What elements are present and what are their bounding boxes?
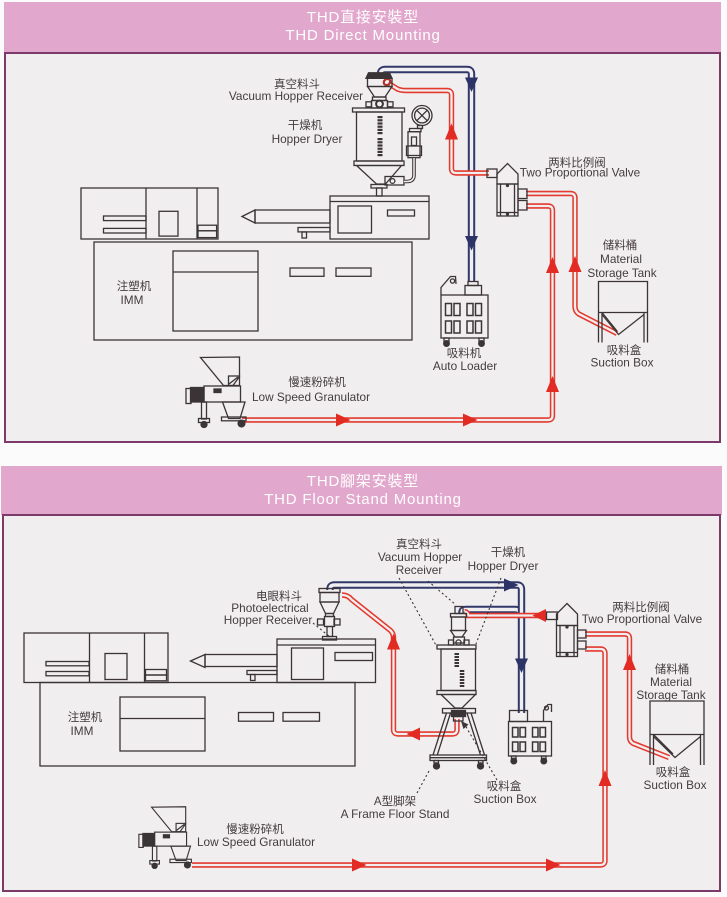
svg-text:THD腳架安裝型: THD腳架安裝型 (307, 473, 419, 490)
svg-text:Low Speed Granulator: Low Speed Granulator (197, 835, 315, 849)
svg-text:THD直接安裝型: THD直接安裝型 (307, 9, 419, 26)
svg-text:Auto Loader: Auto Loader (433, 359, 497, 373)
svg-text:吸料盒: 吸料盒 (487, 779, 522, 793)
svg-text:注塑机: 注塑机 (68, 710, 103, 724)
svg-text:干燥机: 干燥机 (288, 118, 323, 132)
svg-text:Receiver: Receiver (396, 563, 443, 577)
svg-text:Suction Box: Suction Box (474, 792, 537, 806)
svg-text:Storage Tank: Storage Tank (636, 688, 705, 702)
svg-text:Vacuum Hopper: Vacuum Hopper (378, 550, 462, 564)
svg-text:慢速粉碎机: 慢速粉碎机 (226, 822, 284, 836)
svg-text:储料桶: 储料桶 (655, 662, 690, 676)
svg-text:Suction Box: Suction Box (591, 356, 654, 370)
svg-text:THD Direct Mounting: THD Direct Mounting (285, 27, 440, 44)
svg-text:Two Proportional Valve: Two Proportional Valve (582, 612, 703, 626)
svg-text:吸料机: 吸料机 (447, 346, 482, 360)
svg-text:真空料斗: 真空料斗 (396, 537, 442, 551)
svg-text:THD Floor Stand Mounting: THD Floor Stand Mounting (264, 491, 462, 508)
svg-text:Suction Box: Suction Box (644, 778, 707, 792)
svg-text:Material: Material (600, 252, 642, 266)
svg-text:A Frame Floor Stand: A Frame Floor Stand (341, 807, 450, 821)
svg-text:IMM: IMM (71, 724, 94, 738)
svg-text:Low Speed Granulator: Low Speed Granulator (252, 390, 370, 404)
svg-text:Hopper Dryer: Hopper Dryer (272, 132, 343, 146)
svg-text:干燥机: 干燥机 (491, 545, 526, 559)
svg-text:吸料盒: 吸料盒 (656, 765, 691, 779)
svg-text:Material: Material (650, 675, 692, 689)
svg-text:IMM: IMM (121, 293, 144, 307)
svg-text:Storage Tank: Storage Tank (587, 266, 656, 280)
svg-text:慢速粉碎机: 慢速粉碎机 (288, 375, 346, 389)
svg-text:Two Proportional Valve: Two Proportional Valve (520, 166, 641, 180)
svg-text:注塑机: 注塑机 (117, 279, 152, 293)
svg-text:储料桶: 储料桶 (603, 238, 638, 252)
svg-text:A型脚架: A型脚架 (374, 794, 416, 808)
svg-text:Hopper Dryer: Hopper Dryer (468, 559, 539, 573)
svg-text:Hopper Receiver: Hopper Receiver (224, 613, 313, 627)
svg-text:Vacuum Hopper Receiver: Vacuum Hopper Receiver (229, 89, 363, 103)
